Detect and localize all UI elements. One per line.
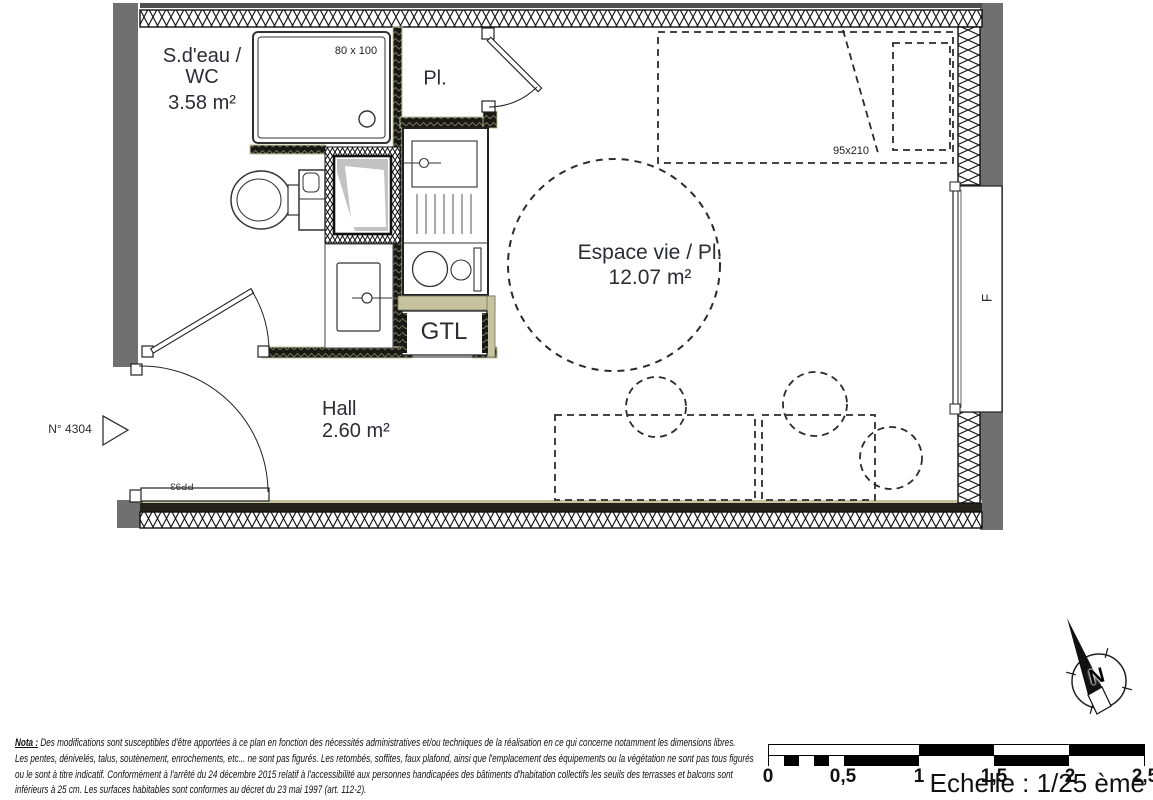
living-area: 12.07 m² [578,265,723,290]
scale-tick-1: 1 [914,766,925,788]
window-label: F [980,294,995,302]
scale-tick-0: 0 [763,766,774,788]
entry-door-ref-label: PP93 [170,481,193,492]
floor-plan-canvas [0,0,1153,800]
nota-text: Nota : Des modifications sont susceptibl… [15,736,748,799]
scale-tick-05: 0,5 [830,766,856,788]
scale-caption: Echelle : 1/25 ème [930,768,1145,799]
unit-number-label: N° 4304 [48,422,92,436]
nota-line-1: Nota : Des modifications sont susceptibl… [15,736,748,752]
technical-duct [325,147,400,243]
shower-size-label: 80 x 100 [335,45,377,57]
entry-door [139,366,269,501]
washbasin [325,244,393,348]
nota-line-4: inférieurs à 25 cm. Les surfaces habitab… [15,783,748,799]
hall-label: Hall 2.60 m² [322,398,390,442]
nota-line-2: Les pentes, dénivelés, talus, soutènemen… [15,752,748,768]
bathroom-area: 3.58 m² [163,93,241,114]
closet-door [487,37,541,107]
gtl-label: GTL [421,318,468,346]
hall-area: 2.60 m² [322,420,390,442]
unit-triangle-icon [103,416,128,445]
bed-size-label: 95x210 [833,145,869,157]
scale-bar-bottom-row [769,755,1144,766]
floor-plan: S.d'eau / WC 3.58 m² Pl. Espace vie / Pl… [0,0,1153,800]
closet-label: Pl. [423,69,446,90]
living-label: Espace vie / Pl. 12.07 m² [578,240,723,290]
scale-bar [768,744,1145,766]
exterior-walls [113,3,1003,530]
bathroom-label: S.d'eau / WC 3.58 m² [163,46,241,114]
kitchenette [403,128,488,295]
toilet [231,170,325,230]
dashed-furniture [508,30,953,500]
nota-label: Nota : [15,737,38,749]
bathroom-door [151,289,269,354]
scale-bar-top-row [769,745,1144,755]
nota-line-3: ou le sont à titre indicatif. Conforméme… [15,768,748,784]
